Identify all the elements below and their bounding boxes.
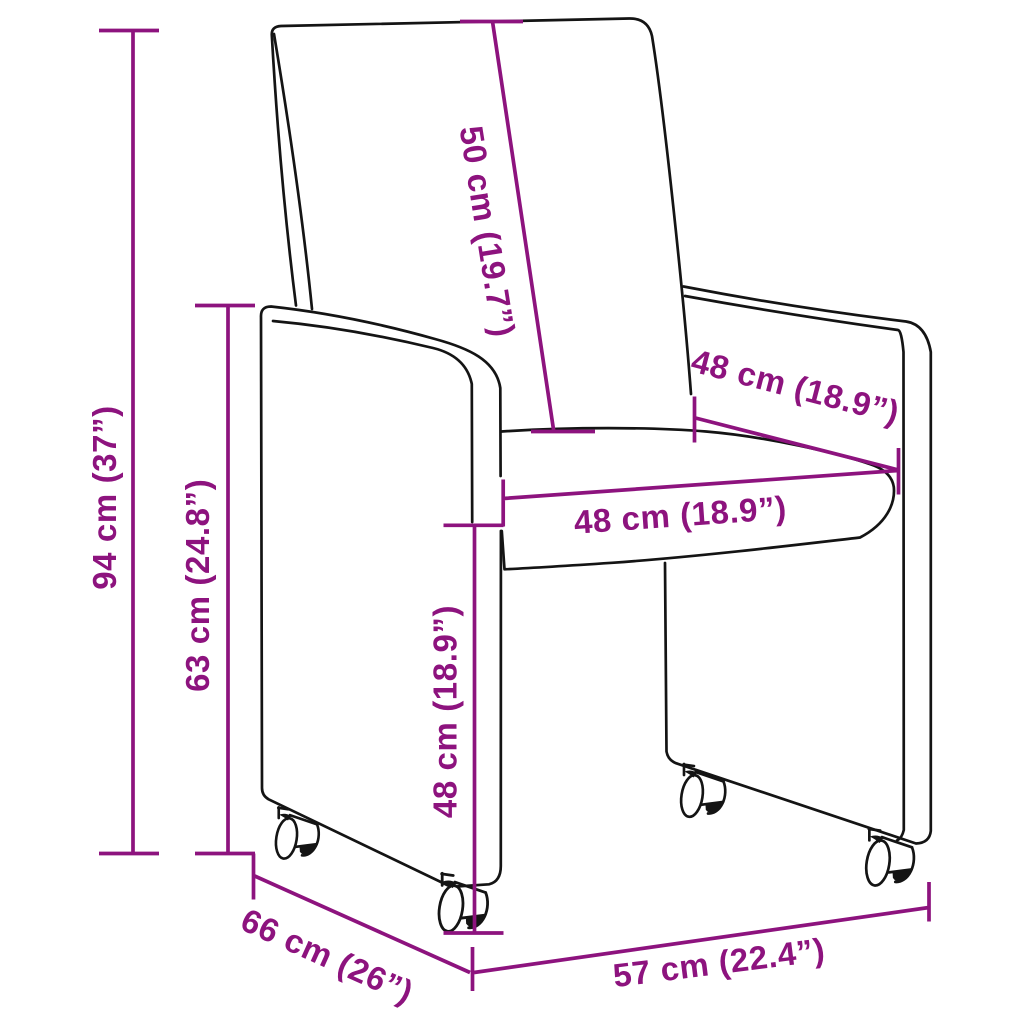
- svg-text:63 cm (24.8”): 63 cm (24.8”): [179, 479, 216, 692]
- svg-text:94 cm (37”): 94 cm (37”): [86, 405, 123, 590]
- svg-text:48 cm (18.9”): 48 cm (18.9”): [427, 605, 464, 818]
